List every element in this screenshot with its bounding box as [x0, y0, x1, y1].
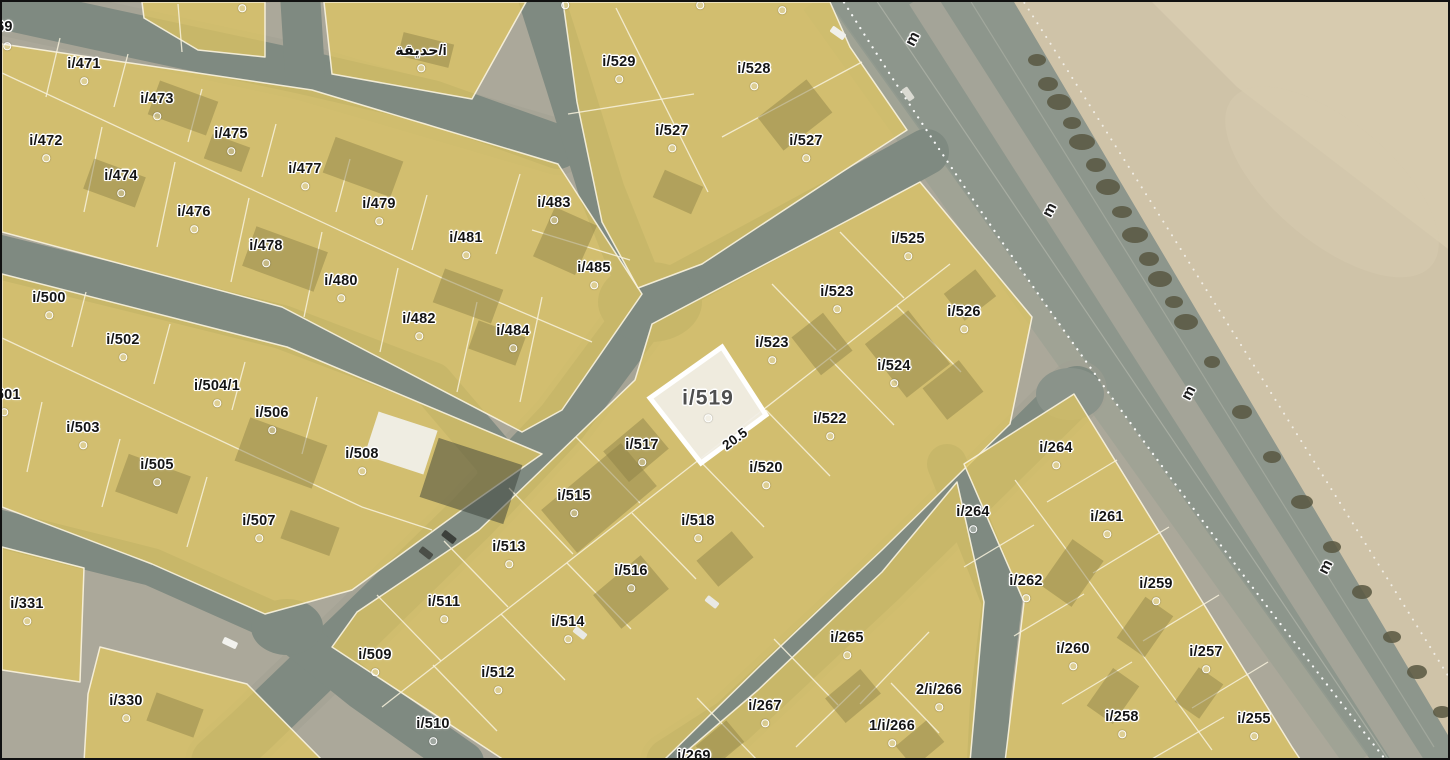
parcel-centroid-dot: [122, 714, 130, 722]
parcel-label[interactable]: i/264: [956, 505, 990, 520]
parcel-label[interactable]: i/517: [625, 438, 659, 453]
parcel-centroid-dot: [627, 584, 635, 592]
parcel-label[interactable]: i/506: [255, 406, 289, 421]
parcel-label[interactable]: i/484: [496, 324, 530, 339]
parcel-label[interactable]: i/261: [1090, 510, 1124, 525]
parcel-label[interactable]: i/503: [66, 421, 100, 436]
parcel-centroid-dot: [190, 225, 198, 233]
parcel-centroid-dot: [888, 739, 896, 747]
parcel-label[interactable]: i/265: [830, 631, 864, 646]
parcel-centroid-dot: [615, 75, 623, 83]
parcel-centroid-dot: [935, 703, 943, 711]
parcel-label[interactable]: i/260: [1056, 642, 1090, 657]
parcel-label[interactable]: i/269: [677, 749, 711, 760]
parcel-centroid-dot: [890, 379, 898, 387]
parcel-centroid-dot: [227, 147, 235, 155]
road-label: m: [1179, 383, 1199, 403]
parcel-label[interactable]: i/526: [947, 305, 981, 320]
parcel-label[interactable]: i/525: [891, 232, 925, 247]
parcel-label[interactable]: i/518: [681, 514, 715, 529]
parcel-label[interactable]: i/479: [362, 197, 396, 212]
parcel-centroid-dot: [1069, 662, 1077, 670]
parcel-label[interactable]: i/516: [614, 564, 648, 579]
parcel-centroid-dot: [1052, 461, 1060, 469]
parcel-centroid-dot: [0, 408, 8, 416]
parcel-centroid-dot: [762, 481, 770, 489]
parcel-label[interactable]: i/500: [32, 291, 66, 306]
parcel-centroid-dot: [826, 432, 834, 440]
parcel-centroid-dot: [694, 534, 702, 542]
parcel-label[interactable]: i/477: [288, 162, 322, 177]
parcel-label[interactable]: i/527: [789, 134, 823, 149]
parcel-centroid-dot: [417, 64, 425, 72]
parcel-label[interactable]: i/512: [481, 666, 515, 681]
parcel-label[interactable]: i/509: [358, 648, 392, 663]
parcel-centroid-dot: [153, 112, 161, 120]
parcel-label[interactable]: i/475: [214, 127, 248, 142]
map-viewport[interactable]: i/469i/471i/473i/475i/477i/479i/481i/483…: [0, 0, 1450, 760]
parcel-label[interactable]: i/511: [428, 595, 461, 610]
parcel-centroid-dot: [117, 189, 125, 197]
parcel-centroid-dot: [704, 414, 712, 422]
parcel-label[interactable]: i/469: [0, 20, 13, 35]
parcel-label[interactable]: i/520: [749, 461, 783, 476]
parcel-label[interactable]: i/257: [1189, 645, 1223, 660]
parcel-centroid-dot: [1103, 530, 1111, 538]
parcel-label[interactable]: i/523: [820, 285, 854, 300]
parcel-label[interactable]: i/483: [537, 196, 571, 211]
parcel-centroid-dot: [119, 353, 127, 361]
parcel-label[interactable]: i/258: [1105, 710, 1139, 725]
parcel-label[interactable]: i/255: [1237, 712, 1271, 727]
parcel-label[interactable]: i/515: [557, 489, 591, 504]
parcel-centroid-dot: [429, 737, 437, 745]
parcel-label[interactable]: i/485: [577, 261, 611, 276]
parcel-label[interactable]: i/331: [10, 597, 44, 612]
parcel-label[interactable]: i/508: [345, 447, 379, 462]
parcel-centroid-dot: [550, 216, 558, 224]
parcel-label[interactable]: i/471: [67, 57, 101, 72]
road-label: m: [903, 29, 923, 49]
parcel-label[interactable]: i/482: [402, 312, 436, 327]
parcel-label[interactable]: i/472: [29, 134, 63, 149]
parcel-label[interactable]: i/264: [1039, 441, 1073, 456]
parcel-label[interactable]: i/262: [1009, 574, 1043, 589]
parcel-centroid-dot: [462, 251, 470, 259]
parcel-label[interactable]: 2/i/266: [916, 683, 962, 698]
parcel-centroid-dot: [750, 82, 758, 90]
parcel-centroid-dot: [833, 305, 841, 313]
parcel-centroid-dot: [1202, 665, 1210, 673]
parcel-centroid-dot: [268, 426, 276, 434]
parcel-centroid-dot: [1022, 594, 1030, 602]
parcel-centroid-dot: [80, 77, 88, 85]
parcel-centroid-dot: [42, 154, 50, 162]
parcel-label[interactable]: i/513: [492, 540, 526, 555]
parcel-centroid-dot: [778, 6, 786, 14]
parcel-centroid-dot: [153, 478, 161, 486]
parcel-label[interactable]: i/476: [177, 205, 211, 220]
parcel-centroid-dot: [1152, 597, 1160, 605]
parcel-label[interactable]: i/478: [249, 239, 283, 254]
parcel-label[interactable]: i/259: [1139, 577, 1173, 592]
parcel-centroid-dot: [3, 42, 11, 50]
parcel-centroid-dot: [1118, 730, 1126, 738]
parcel-label[interactable]: i/524: [877, 359, 911, 374]
parcel-centroid-dot: [358, 467, 366, 475]
parcel-label[interactable]: i/514: [551, 615, 585, 630]
parcel-label[interactable]: i/523: [755, 336, 789, 351]
parcel-label[interactable]: حديقة/i: [395, 44, 447, 59]
parcel-label[interactable]: 1/i/266: [869, 719, 915, 734]
road-label: m: [1040, 200, 1060, 220]
dimension-label: 20.5: [720, 426, 750, 453]
parcel-centroid-dot: [45, 311, 53, 319]
parcel-centroid-dot: [960, 325, 968, 333]
parcel-centroid-dot: [262, 259, 270, 267]
parcel-label[interactable]: i/481: [449, 231, 483, 246]
parcel-label[interactable]: i/522: [813, 412, 847, 427]
parcel-centroid-dot: [505, 560, 513, 568]
parcel-centroid-dot: [371, 668, 379, 676]
parcel-label[interactable]: i/473: [140, 92, 174, 107]
labels-layer: i/469i/471i/473i/475i/477i/479i/481i/483…: [2, 2, 1448, 758]
parcel-centroid-dot: [668, 144, 676, 152]
parcel-label[interactable]: i/504/1: [194, 379, 240, 394]
parcel-label[interactable]: i/474: [104, 169, 138, 184]
parcel-centroid-dot: [23, 617, 31, 625]
parcel-centroid-dot: [969, 525, 977, 533]
parcel-centroid-dot: [1250, 732, 1258, 740]
parcel-centroid-dot: [375, 217, 383, 225]
parcel-centroid-dot: [301, 182, 309, 190]
parcel-centroid-dot: [590, 281, 598, 289]
parcel-label[interactable]: i/330: [109, 694, 143, 709]
parcel-label[interactable]: i/529: [602, 55, 636, 70]
selected-parcel-label[interactable]: i/519: [682, 388, 734, 409]
parcel-centroid-dot: [570, 509, 578, 517]
parcel-label[interactable]: i/505: [140, 458, 174, 473]
parcel-label[interactable]: i/480: [324, 274, 358, 289]
parcel-label[interactable]: i/528: [737, 62, 771, 77]
parcel-label[interactable]: i/267: [748, 699, 782, 714]
parcel-centroid-dot: [564, 635, 572, 643]
parcel-centroid-dot: [79, 441, 87, 449]
parcel-label[interactable]: i/507: [242, 514, 276, 529]
parcel-centroid-dot: [494, 686, 502, 694]
parcel-centroid-dot: [509, 344, 517, 352]
parcel-centroid-dot: [337, 294, 345, 302]
parcel-label[interactable]: i/510: [416, 717, 450, 732]
parcel-centroid-dot: [843, 651, 851, 659]
parcel-label[interactable]: i/501: [0, 388, 21, 403]
parcel-centroid-dot: [415, 332, 423, 340]
parcel-label[interactable]: i/502: [106, 333, 140, 348]
parcel-centroid-dot: [213, 399, 221, 407]
parcel-centroid-dot: [440, 615, 448, 623]
parcel-centroid-dot: [561, 1, 569, 9]
parcel-centroid-dot: [904, 252, 912, 260]
parcel-centroid-dot: [238, 4, 246, 12]
parcel-centroid-dot: [255, 534, 263, 542]
parcel-centroid-dot: [696, 1, 704, 9]
parcel-label[interactable]: i/527: [655, 124, 689, 139]
parcel-centroid-dot: [761, 719, 769, 727]
parcel-centroid-dot: [638, 458, 646, 466]
parcel-centroid-dot: [768, 356, 776, 364]
road-label: m: [1316, 557, 1336, 577]
parcel-centroid-dot: [802, 154, 810, 162]
